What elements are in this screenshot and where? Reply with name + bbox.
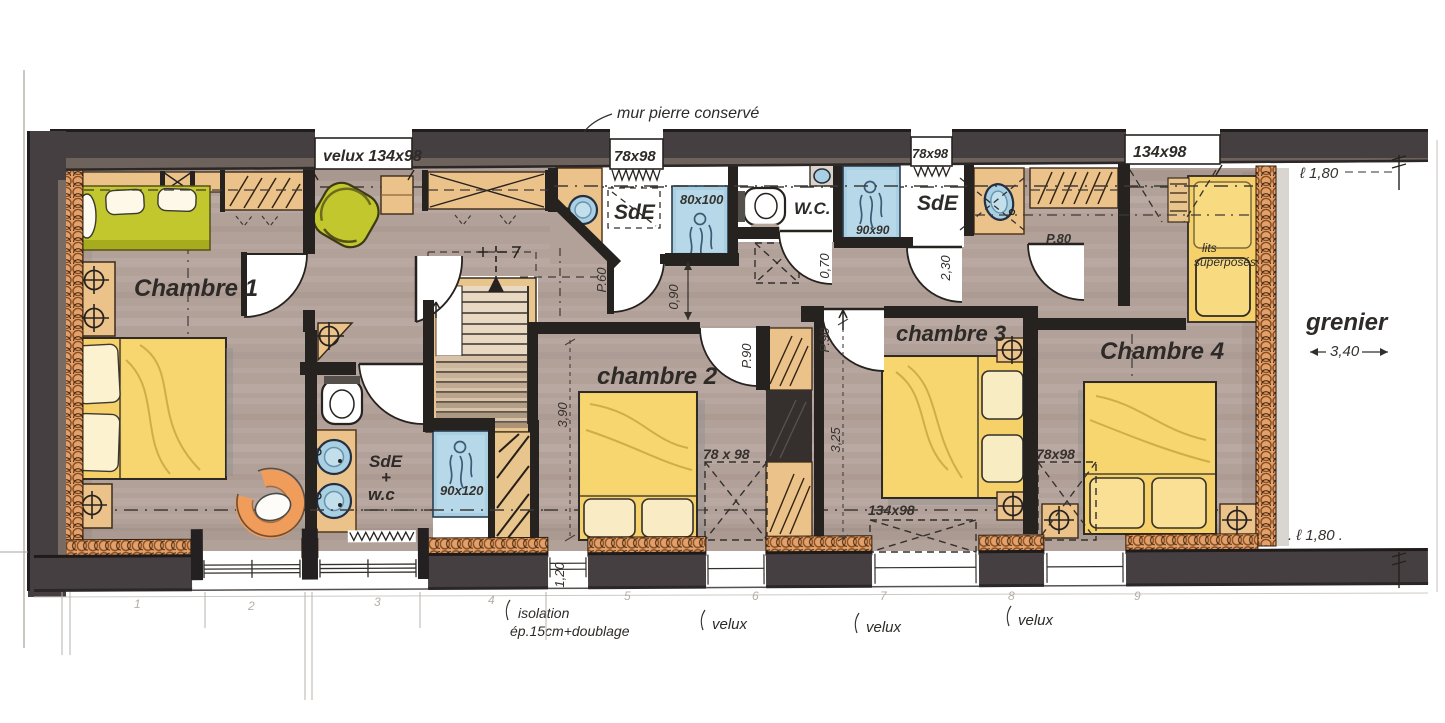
svg-text:P.80: P.80	[1046, 231, 1072, 246]
svg-text:2: 2	[247, 599, 255, 613]
svg-text:3,25: 3,25	[828, 427, 843, 453]
svg-text:mur pierre conservé: mur pierre conservé	[617, 105, 759, 122]
svg-text:lits: lits	[1202, 241, 1217, 255]
svg-text:90x120: 90x120	[440, 483, 484, 498]
svg-text:0,70: 0,70	[817, 253, 832, 279]
svg-text:9: 9	[1134, 589, 1141, 603]
svg-text:78x98: 78x98	[1036, 446, 1075, 462]
svg-text:P.90: P.90	[739, 343, 754, 369]
svg-text:superposés: superposés	[1194, 255, 1256, 269]
svg-text:P.90: P.90	[817, 327, 832, 353]
svg-text:1: 1	[134, 597, 141, 611]
svg-text:ép.15cm+doublage: ép.15cm+doublage	[510, 623, 630, 639]
svg-text:1,20: 1,20	[552, 562, 567, 588]
svg-text:P.60: P.60	[594, 267, 609, 293]
svg-text:chambre 2: chambre 2	[597, 363, 718, 390]
svg-text:3: 3	[374, 595, 381, 609]
svg-text:velux: velux	[1018, 612, 1054, 629]
svg-text:134x98: 134x98	[868, 502, 915, 518]
svg-text:4: 4	[488, 593, 495, 607]
svg-text:W.C.: W.C.	[794, 199, 831, 218]
svg-text:velux: velux	[712, 616, 748, 633]
svg-text:SdE: SdE	[614, 201, 656, 224]
svg-text:velux 134x98: velux 134x98	[323, 148, 422, 165]
svg-text:isolation: isolation	[518, 605, 570, 621]
svg-text:ℓ 1,80: ℓ 1,80	[1299, 165, 1339, 182]
svg-text:w.c: w.c	[368, 485, 395, 504]
svg-text:8: 8	[1008, 589, 1015, 603]
svg-text:Chambre 1: Chambre 1	[134, 275, 258, 302]
svg-text:chambre 3: chambre 3	[896, 321, 1006, 346]
svg-text:Chambre 4: Chambre 4	[1100, 338, 1224, 365]
svg-text:SdE: SdE	[917, 192, 959, 215]
svg-text:78 x 98: 78 x 98	[703, 446, 750, 462]
svg-text:. ℓ 1,80 .: . ℓ 1,80 .	[1288, 527, 1343, 544]
svg-text:grenier: grenier	[1305, 309, 1389, 336]
svg-text:134x98: 134x98	[1133, 144, 1186, 161]
svg-text:velux: velux	[866, 619, 902, 636]
svg-text:6: 6	[752, 589, 759, 603]
svg-text:0,90: 0,90	[666, 284, 681, 310]
svg-text:90x90: 90x90	[856, 223, 890, 237]
svg-text:78x98: 78x98	[614, 148, 656, 165]
svg-text:80x100: 80x100	[680, 192, 724, 207]
svg-text:5: 5	[624, 589, 631, 603]
svg-text:3,90: 3,90	[555, 402, 570, 428]
svg-text:78x98: 78x98	[912, 146, 949, 161]
svg-text:3,40: 3,40	[1330, 343, 1360, 360]
svg-text:2,30: 2,30	[938, 255, 953, 282]
